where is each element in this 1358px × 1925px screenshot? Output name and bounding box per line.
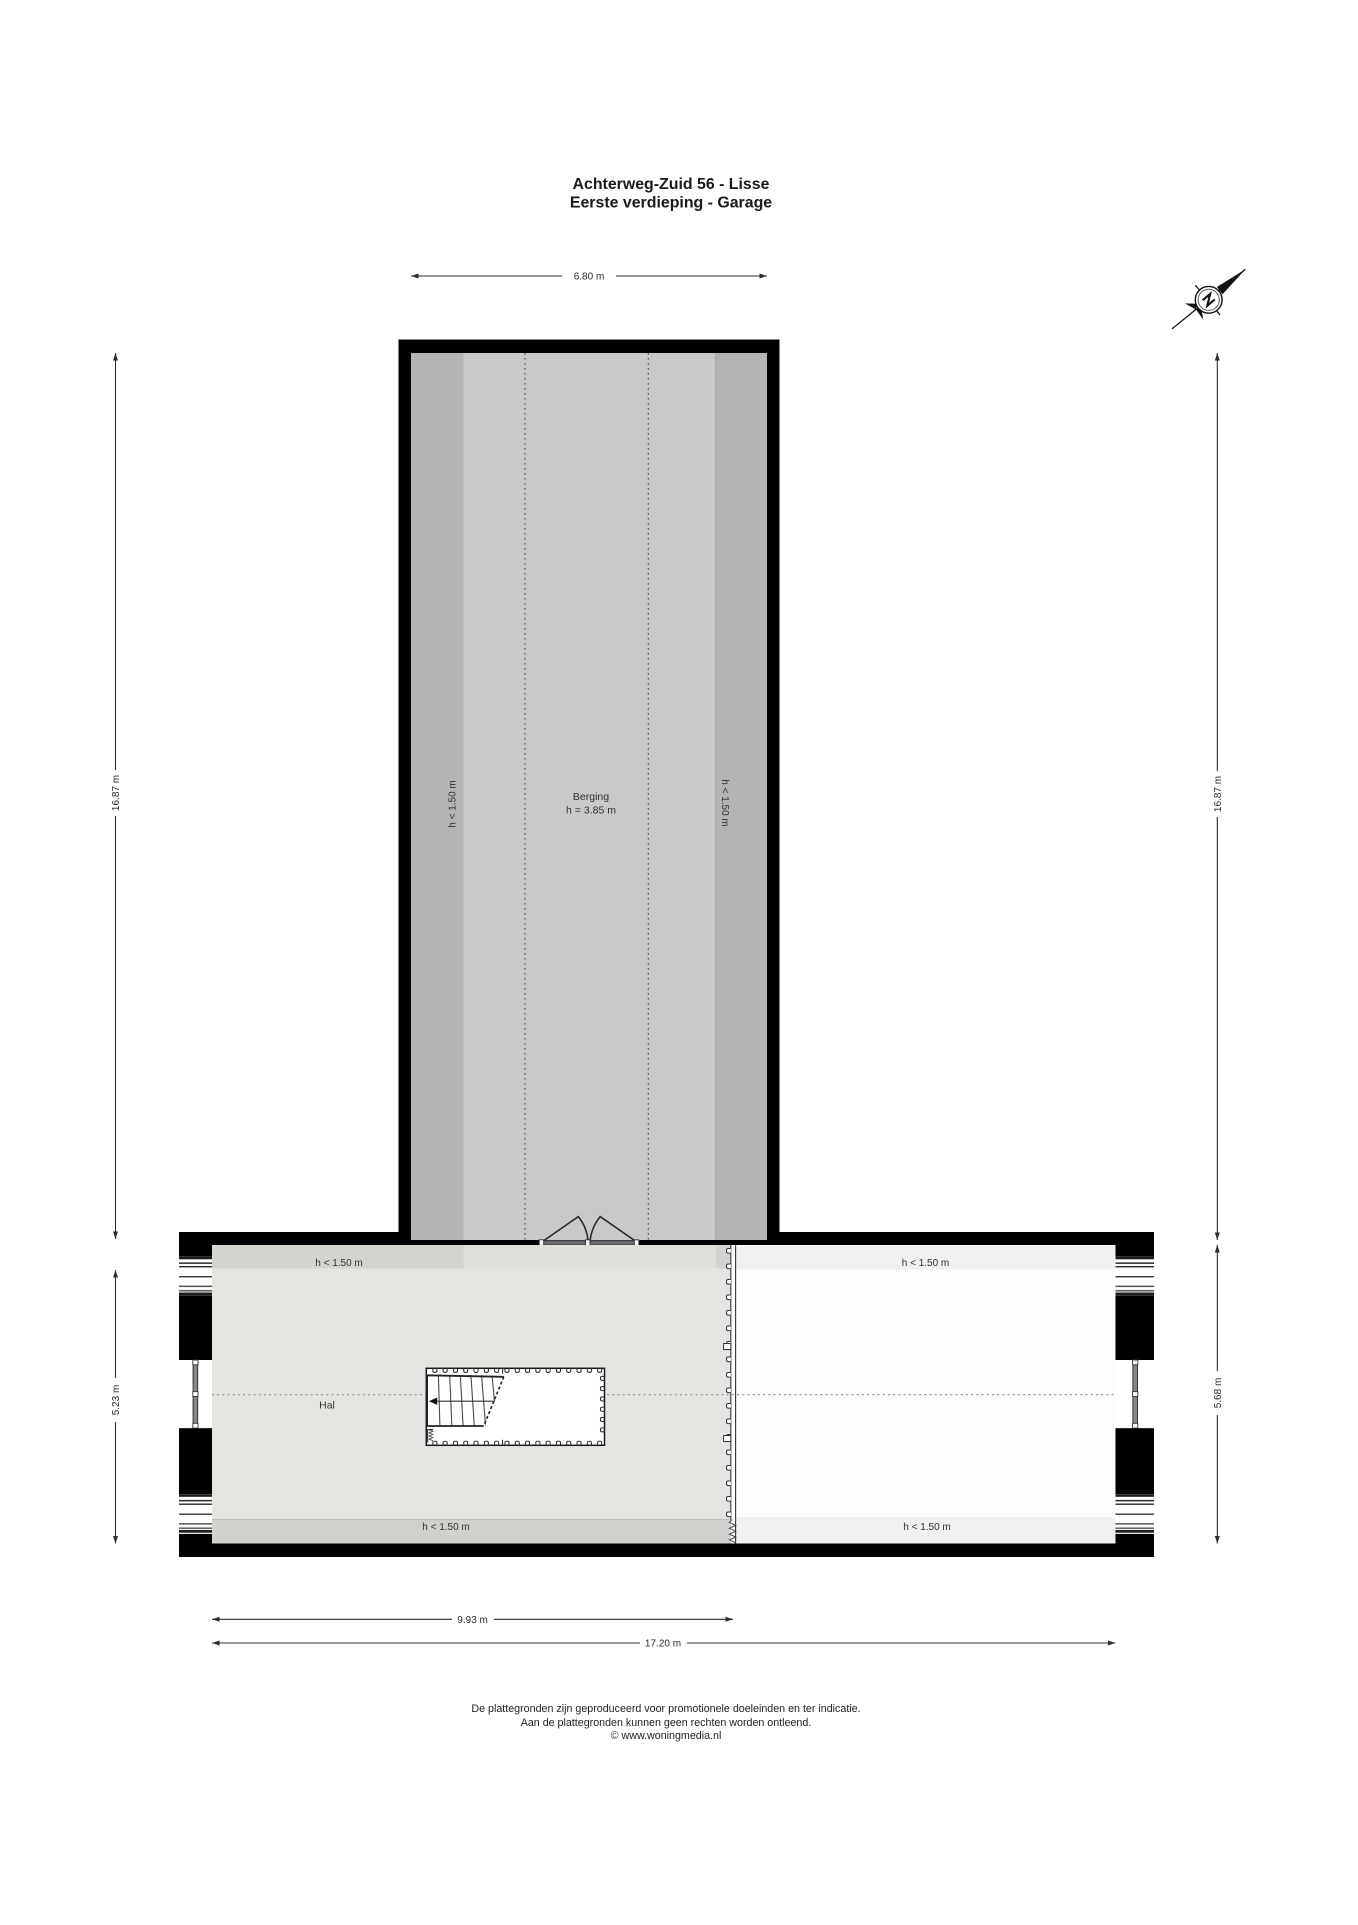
svg-text:h < 1.50 m: h < 1.50 m xyxy=(448,780,459,828)
svg-text:h = 3.85 m: h = 3.85 m xyxy=(566,805,616,817)
svg-text:5.23 m: 5.23 m xyxy=(111,1385,122,1416)
svg-text:h < 1.50 m: h < 1.50 m xyxy=(315,1258,363,1269)
svg-text:h < 1.50 m: h < 1.50 m xyxy=(902,1258,950,1269)
svg-text:16.87 m: 16.87 m xyxy=(111,775,122,811)
svg-text:h < 1.50 m: h < 1.50 m xyxy=(903,1522,951,1533)
svg-text:© www.woningmedia.nl: © www.woningmedia.nl xyxy=(611,1730,722,1742)
svg-text:h < 1.50 m: h < 1.50 m xyxy=(422,1522,470,1533)
svg-text:5.68 m: 5.68 m xyxy=(1213,1378,1224,1409)
svg-text:6.80 m: 6.80 m xyxy=(574,272,605,283)
svg-text:Berging: Berging xyxy=(573,791,609,803)
svg-text:h < 1.50 m: h < 1.50 m xyxy=(719,779,730,827)
svg-text:Achterweg-Zuid 56 - Lisse: Achterweg-Zuid 56 - Lisse xyxy=(573,176,770,193)
svg-text:Aan de plattegronden kunnen ge: Aan de plattegronden kunnen geen rechten… xyxy=(521,1717,812,1729)
svg-text:Hal: Hal xyxy=(319,1400,335,1412)
svg-text:17.20 m: 17.20 m xyxy=(645,1639,681,1650)
svg-text:16.87 m: 16.87 m xyxy=(1213,776,1224,812)
svg-text:De plattegronden zijn geproduc: De plattegronden zijn geproduceerd voor … xyxy=(471,1703,860,1715)
svg-text:9.93 m: 9.93 m xyxy=(457,1615,488,1626)
svg-text:Eerste verdieping - Garage: Eerste verdieping - Garage xyxy=(570,195,772,212)
